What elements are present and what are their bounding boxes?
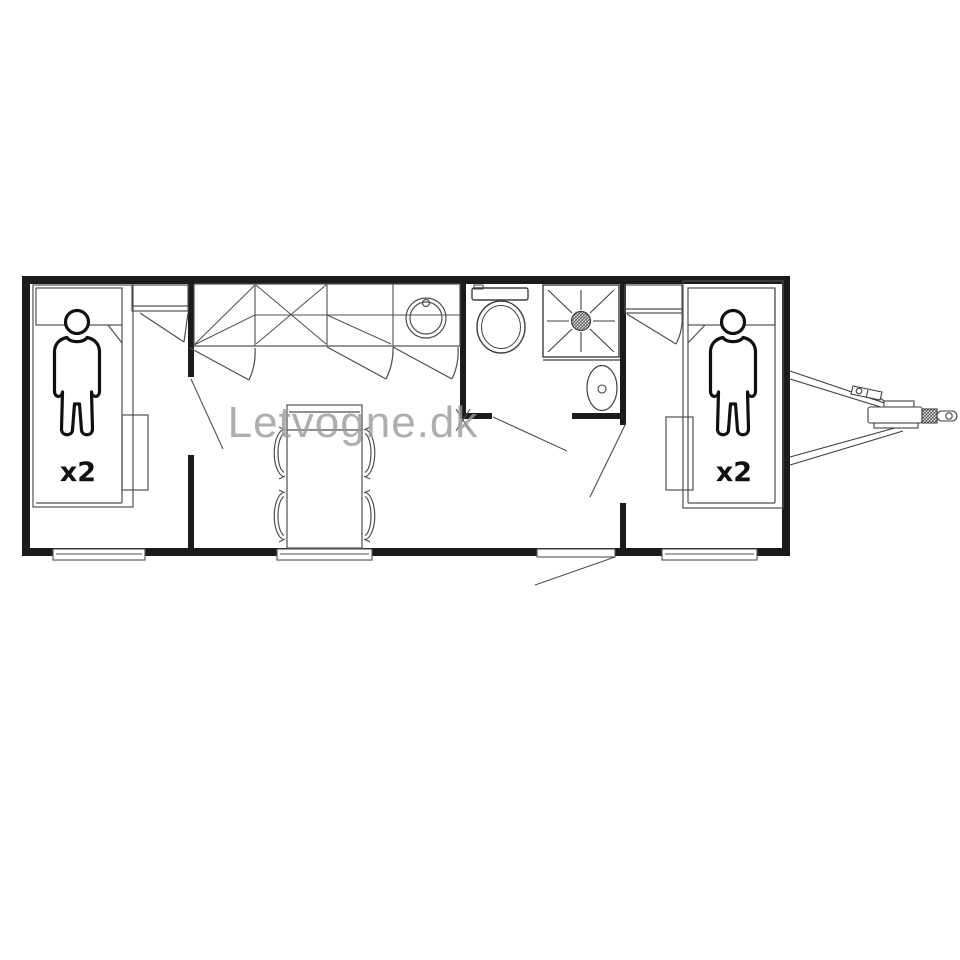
- washbasin-icon: [587, 366, 617, 411]
- left-bedroom-door-leaf: [191, 379, 223, 449]
- chair: [364, 490, 375, 542]
- shower-drain-icon: [572, 312, 591, 331]
- chair: [274, 490, 285, 542]
- wall-left: [22, 276, 30, 556]
- wardrobe-right-bedroom: [625, 285, 682, 344]
- window-living-area: [537, 549, 615, 557]
- kitchen-sink-icon: [406, 298, 446, 338]
- shower-icon: [543, 285, 620, 360]
- wall-left-bedroom-upper: [188, 284, 194, 377]
- cabinet-door-arcs: [190, 347, 458, 380]
- bed-capacity-label: x2: [60, 457, 96, 488]
- wall-left-bedroom-lower: [188, 455, 194, 548]
- right-bedroom: x2: [625, 281, 783, 508]
- bed-capacity-label: x2: [716, 457, 752, 488]
- floorplan-page: x2: [0, 0, 960, 960]
- watermark: Letvogne.dk: [228, 398, 479, 447]
- window-left-bedroom: [53, 549, 145, 560]
- entrance-door-step: [277, 549, 372, 560]
- bathroom: [472, 285, 620, 411]
- wall-top: [22, 276, 790, 284]
- blanket-fold: [688, 325, 705, 343]
- kitchen: [190, 284, 460, 380]
- person-icon: [711, 311, 756, 435]
- wall-bathroom-bottom-right: [572, 413, 626, 419]
- wall-right-bedroom-lower: [620, 503, 626, 548]
- blanket-fold: [108, 325, 122, 343]
- wall-bathroom-left: [460, 284, 466, 415]
- tow-coupling-icon: [868, 401, 957, 428]
- caravan-floorplan: x2: [0, 0, 960, 960]
- window-right-bedroom: [662, 549, 757, 560]
- trailer-drawbar-icon: [790, 371, 957, 465]
- bathroom-door-leaf: [493, 417, 567, 451]
- window-leader-line: [535, 557, 615, 585]
- cabinet-right-bedroom: [666, 417, 693, 490]
- toilet-icon: [472, 285, 528, 353]
- closet-top: [132, 285, 188, 342]
- left-bedroom: x2: [33, 285, 188, 507]
- person-icon: [55, 311, 100, 435]
- wardrobe-left-bedroom: [122, 415, 148, 490]
- right-bedroom-door-leaf: [590, 423, 626, 497]
